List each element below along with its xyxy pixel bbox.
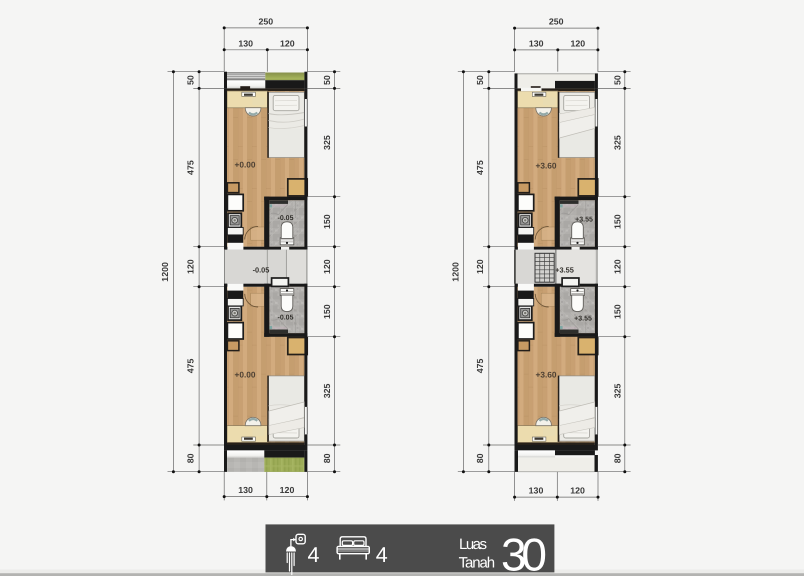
svg-text:+3.55: +3.55 bbox=[555, 266, 574, 275]
svg-text:325: 325 bbox=[612, 383, 622, 398]
svg-text:Tanah: Tanah bbox=[459, 554, 496, 571]
svg-text:80: 80 bbox=[322, 453, 332, 463]
svg-text:250: 250 bbox=[258, 16, 273, 26]
svg-text:50: 50 bbox=[612, 75, 622, 85]
svg-text:325: 325 bbox=[322, 135, 332, 150]
svg-text:-0.05: -0.05 bbox=[253, 266, 270, 275]
svg-text:+3.55: +3.55 bbox=[575, 217, 593, 224]
svg-text:475: 475 bbox=[475, 358, 485, 373]
svg-text:150: 150 bbox=[612, 304, 622, 319]
svg-text:-0.05: -0.05 bbox=[278, 215, 294, 222]
svg-text:Luas: Luas bbox=[459, 536, 487, 553]
svg-text:4: 4 bbox=[376, 543, 388, 567]
svg-text:30: 30 bbox=[501, 528, 547, 576]
svg-text:130: 130 bbox=[529, 485, 544, 495]
svg-text:+3.60: +3.60 bbox=[536, 160, 557, 170]
svg-text:130: 130 bbox=[238, 38, 253, 48]
svg-text:120: 120 bbox=[475, 259, 485, 274]
svg-text:50: 50 bbox=[185, 75, 195, 85]
svg-text:325: 325 bbox=[322, 383, 332, 398]
svg-text:150: 150 bbox=[322, 214, 332, 229]
svg-text:120: 120 bbox=[185, 259, 195, 274]
svg-text:130: 130 bbox=[529, 38, 544, 48]
svg-text:50: 50 bbox=[475, 75, 485, 85]
svg-text:80: 80 bbox=[185, 453, 195, 463]
svg-text:1200: 1200 bbox=[451, 262, 461, 282]
svg-text:120: 120 bbox=[612, 259, 622, 274]
svg-text:150: 150 bbox=[322, 304, 332, 319]
svg-text:4: 4 bbox=[308, 543, 320, 567]
svg-text:250: 250 bbox=[549, 17, 564, 27]
svg-text:475: 475 bbox=[475, 160, 485, 175]
svg-text:120: 120 bbox=[570, 38, 585, 48]
svg-text:+3.55: +3.55 bbox=[574, 316, 592, 323]
svg-text:475: 475 bbox=[185, 160, 195, 175]
svg-text:80: 80 bbox=[612, 453, 622, 463]
svg-text:50: 50 bbox=[322, 75, 332, 85]
svg-text:475: 475 bbox=[185, 358, 195, 373]
svg-text:80: 80 bbox=[475, 453, 485, 463]
svg-text:120: 120 bbox=[322, 259, 332, 274]
svg-text:325: 325 bbox=[612, 135, 622, 150]
svg-text:1200: 1200 bbox=[160, 262, 170, 282]
svg-text:+0.00: +0.00 bbox=[235, 370, 256, 380]
svg-text:120: 120 bbox=[280, 38, 295, 48]
svg-text:+0.00: +0.00 bbox=[235, 160, 256, 170]
svg-text:130: 130 bbox=[238, 485, 253, 495]
svg-text:150: 150 bbox=[612, 214, 622, 229]
svg-text:120: 120 bbox=[570, 485, 585, 495]
svg-text:120: 120 bbox=[280, 485, 295, 495]
svg-text:+3.60: +3.60 bbox=[536, 370, 557, 380]
svg-text:-0.05: -0.05 bbox=[278, 315, 294, 322]
